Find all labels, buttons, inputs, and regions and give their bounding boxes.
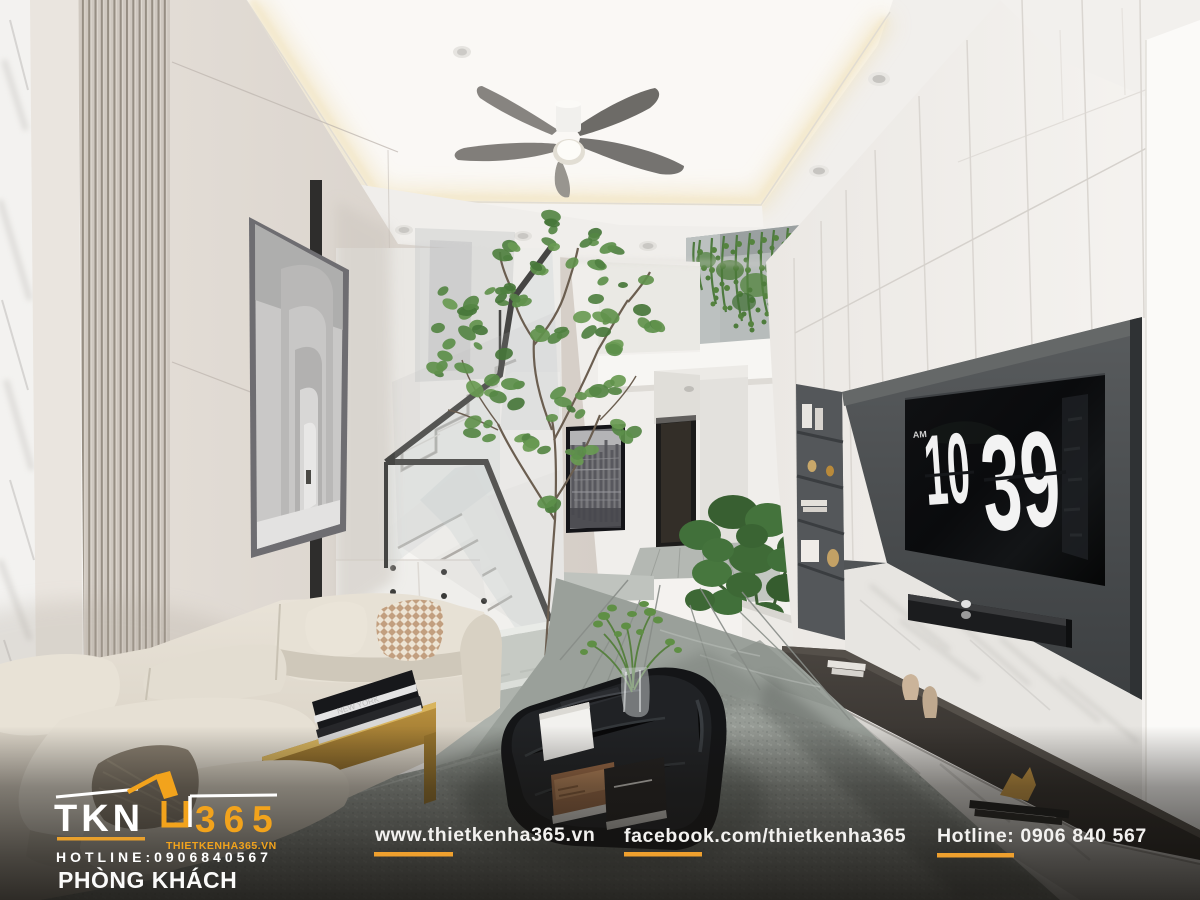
svg-text:10: 10	[921, 412, 974, 527]
svg-text:TKN: TKN	[54, 798, 144, 840]
svg-text:365: 365	[195, 799, 281, 840]
svg-text:HOTLINE:0906840567: HOTLINE:0906840567	[56, 849, 272, 865]
svg-text:PHÒNG KHÁCH: PHÒNG KHÁCH	[58, 866, 237, 893]
svg-text:facebook.com/thietkenha365: facebook.com/thietkenha365	[624, 825, 906, 847]
svg-text:Hotline: 0906 840 567: Hotline: 0906 840 567	[937, 825, 1147, 847]
svg-text:www.thietkenha365.vn: www.thietkenha365.vn	[374, 824, 595, 846]
